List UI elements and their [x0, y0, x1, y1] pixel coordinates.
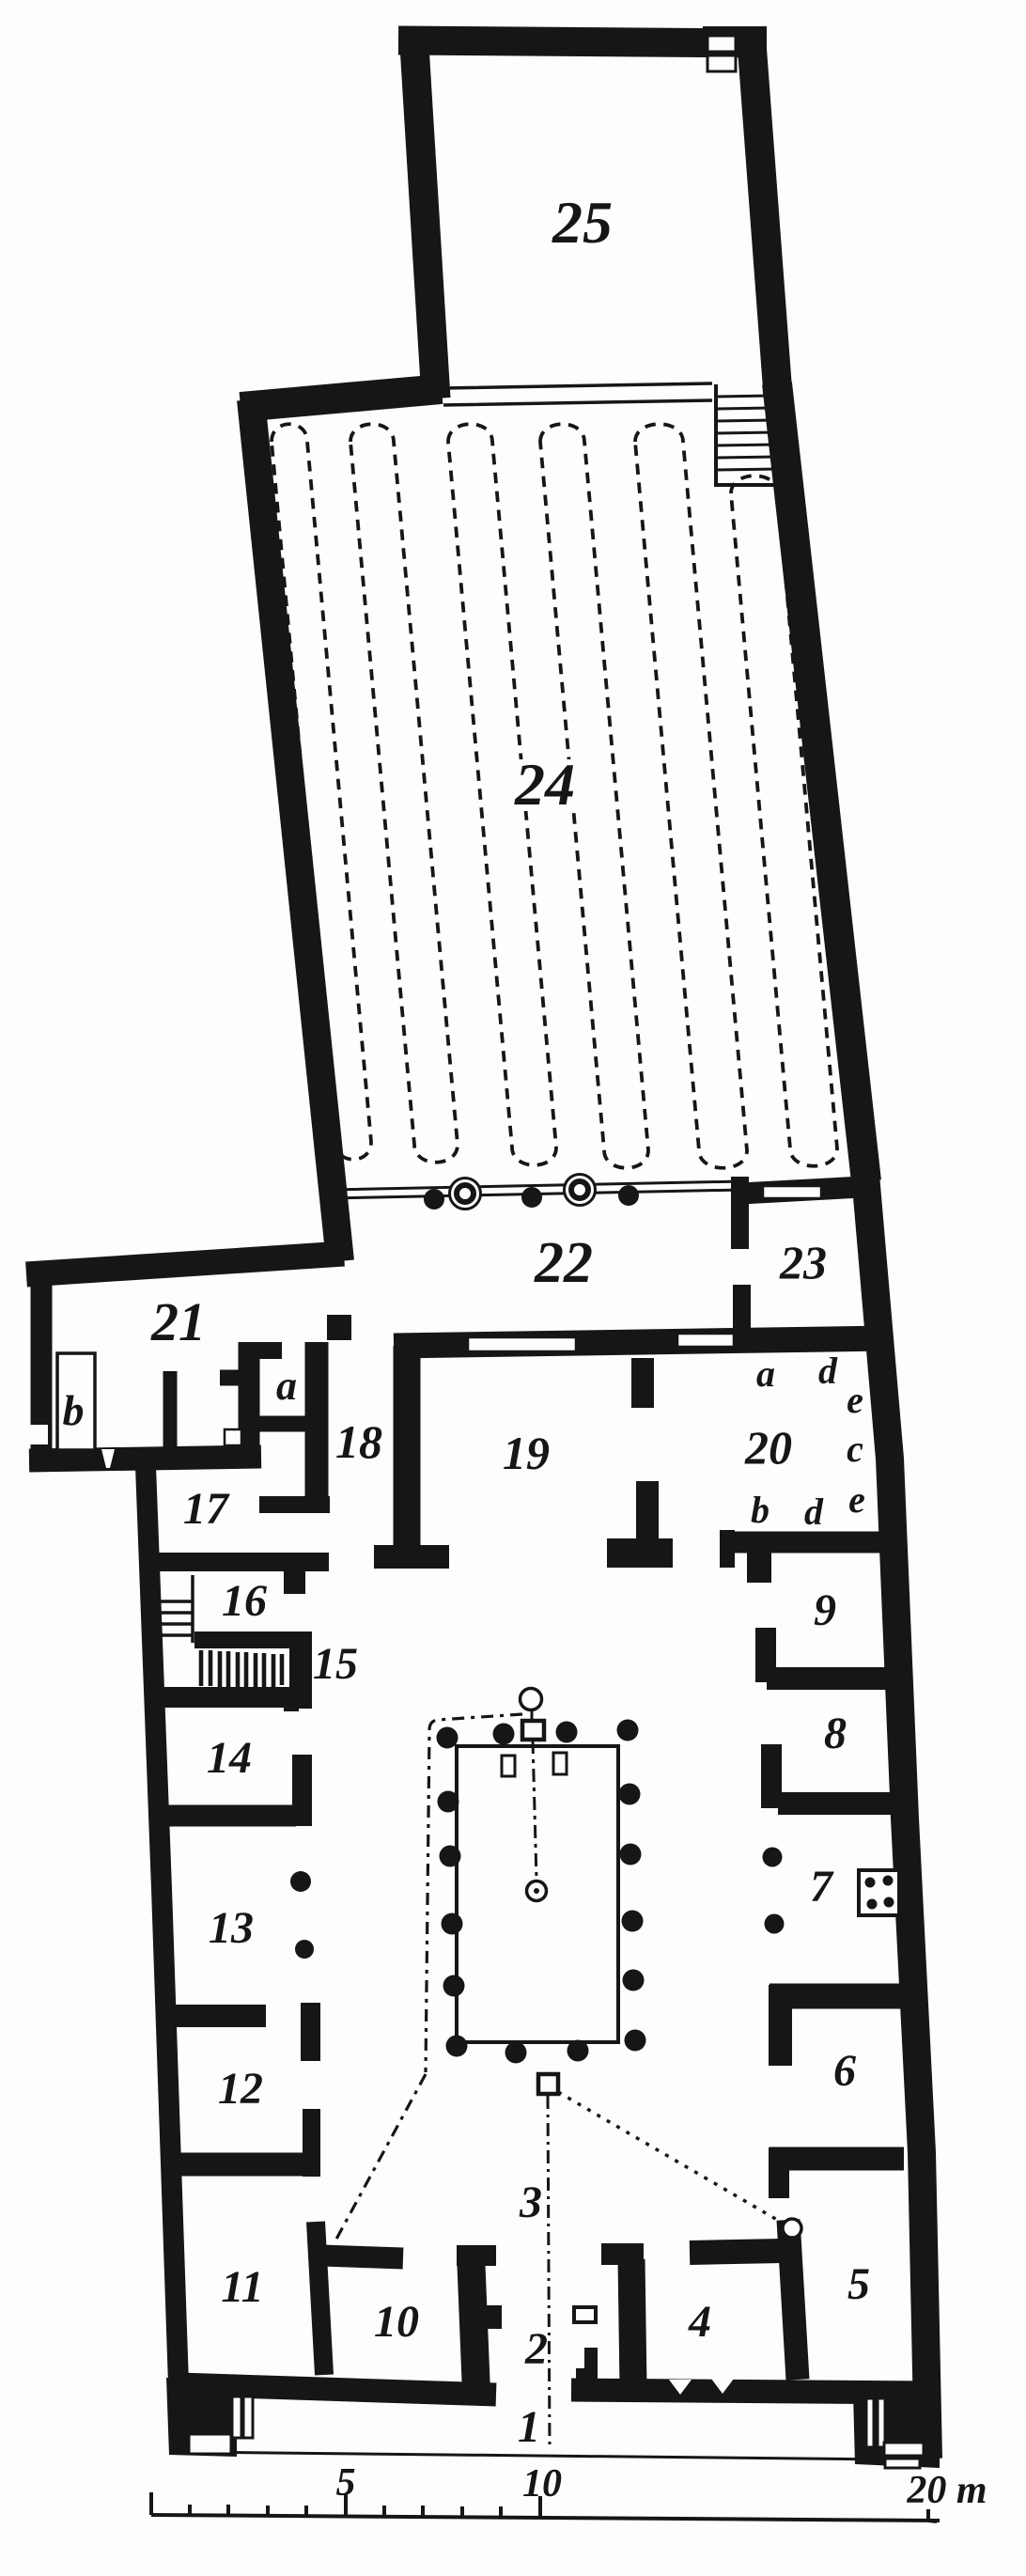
svg-text:b: b [63, 1386, 85, 1434]
svg-text:8: 8 [824, 1709, 847, 1758]
svg-text:9: 9 [814, 1585, 836, 1635]
svg-text:17: 17 [183, 1484, 230, 1534]
svg-text:b: b [751, 1489, 769, 1531]
svg-text:15: 15 [313, 1639, 358, 1689]
svg-text:7: 7 [810, 1862, 834, 1912]
svg-text:a: a [756, 1352, 775, 1395]
svg-text:a: a [276, 1363, 297, 1409]
svg-text:18: 18 [335, 1415, 382, 1468]
svg-text:13: 13 [209, 1903, 254, 1953]
svg-text:21: 21 [150, 1291, 206, 1352]
svg-text:11: 11 [221, 2262, 263, 2312]
svg-text:d: d [818, 1350, 838, 1392]
svg-text:5: 5 [336, 2461, 356, 2505]
svg-text:3: 3 [519, 2178, 542, 2227]
svg-text:d: d [804, 1491, 824, 1533]
svg-text:23: 23 [779, 1236, 827, 1288]
svg-text:4: 4 [688, 2297, 711, 2347]
svg-text:14: 14 [207, 1733, 252, 1783]
svg-text:c: c [847, 1428, 863, 1470]
svg-text:5: 5 [847, 2259, 870, 2309]
svg-text:10: 10 [374, 2297, 419, 2347]
svg-text:10: 10 [522, 2462, 562, 2506]
svg-text:2: 2 [524, 2324, 548, 2374]
svg-text:24: 24 [514, 751, 575, 818]
svg-text:12: 12 [218, 2064, 263, 2114]
svg-text:22: 22 [534, 1231, 593, 1295]
svg-text:6: 6 [833, 2046, 856, 2096]
svg-text:16: 16 [222, 1576, 267, 1626]
svg-text:1: 1 [518, 2402, 540, 2452]
svg-text:19: 19 [503, 1427, 550, 1479]
svg-text:e: e [847, 1379, 863, 1421]
svg-text:25: 25 [552, 189, 613, 256]
svg-text:e: e [848, 1478, 865, 1521]
svg-text:20 m: 20 m [906, 2469, 987, 2512]
svg-text:20: 20 [744, 1421, 792, 1474]
